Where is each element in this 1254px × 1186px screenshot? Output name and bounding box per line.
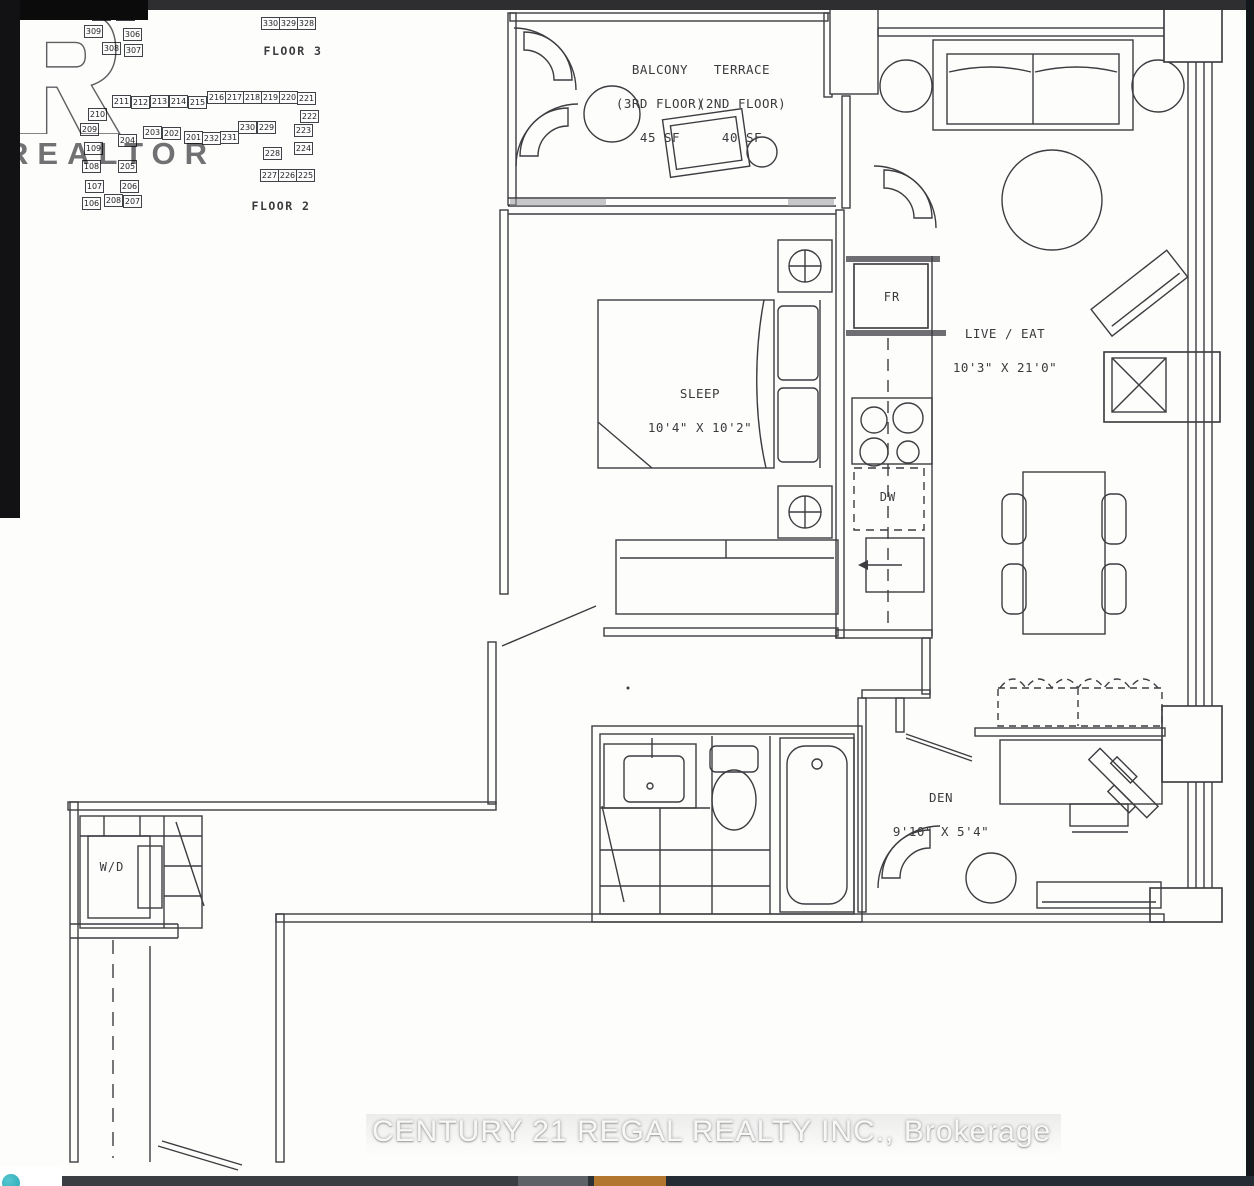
den-label: DEN 9'10" X 5'4" bbox=[893, 772, 989, 857]
keyplan-unit-220: 220 bbox=[279, 91, 298, 104]
keyplan-unit-330: 330 bbox=[261, 17, 280, 30]
keyplan-unit-231: 231 bbox=[220, 131, 239, 144]
keyplan-unit-216: 216 bbox=[207, 91, 226, 104]
balcony-label: BALCONY (3RD FLOOR) 45 SF bbox=[616, 44, 704, 163]
realtor-logo-icon bbox=[6, 14, 126, 134]
right-chrome-strip bbox=[1246, 0, 1254, 1186]
top-left-chrome-block bbox=[0, 0, 148, 20]
brokerage-watermark: CENTURY 21 REGAL REALTY INC., Brokerage bbox=[366, 1114, 1061, 1155]
keyplan-unit-329: 329 bbox=[279, 17, 298, 30]
keyplan-unit-224: 224 bbox=[294, 142, 313, 155]
taskbar-segment bbox=[666, 1176, 1254, 1186]
keyplan-unit-228: 228 bbox=[263, 147, 282, 160]
floor2-label: FLOOR 2 bbox=[252, 199, 311, 213]
sleep-label: SLEEP 10'4" X 10'2" bbox=[648, 368, 752, 453]
keyplan-unit-214: 214 bbox=[169, 95, 188, 108]
realtor-wordmark: REALTOR bbox=[6, 136, 216, 172]
keyplan-unit-207: 207 bbox=[123, 195, 142, 208]
fridge-label: FR bbox=[884, 290, 900, 304]
terrace-label: TERRACE (2ND FLOOR) 40 SF bbox=[698, 44, 786, 163]
app-icon[interactable] bbox=[2, 1174, 20, 1186]
floorplan-page: 310305309306308307330329328 210211212213… bbox=[0, 0, 1254, 1186]
floor3-label: FLOOR 3 bbox=[264, 44, 323, 58]
keyplan-unit-106: 106 bbox=[82, 197, 101, 210]
washer-dryer-label: W/D bbox=[100, 860, 125, 874]
keyplan-unit-215: 215 bbox=[188, 96, 207, 109]
keyplan-unit-307: 307 bbox=[124, 44, 143, 57]
keyplan-unit-219: 219 bbox=[261, 91, 280, 104]
keyplan-unit-328: 328 bbox=[297, 17, 316, 30]
left-chrome-strip bbox=[0, 0, 20, 518]
keyplan-unit-223: 223 bbox=[294, 124, 313, 137]
keyplan-unit-229: 229 bbox=[257, 121, 276, 134]
keyplan-unit-206: 206 bbox=[120, 180, 139, 193]
taskbar-orange-segment bbox=[594, 1176, 666, 1186]
keyplan-unit-225: 225 bbox=[296, 169, 315, 182]
keyplan-unit-226: 226 bbox=[278, 169, 297, 182]
dishwasher-label: DW bbox=[880, 490, 896, 504]
keyplan-unit-222: 222 bbox=[300, 110, 319, 123]
keyplan-unit-227: 227 bbox=[260, 169, 279, 182]
top-chrome-bar bbox=[0, 0, 1254, 10]
keyplan: 310305309306308307330329328 210211212213… bbox=[0, 0, 1254, 1186]
taskbar-segment bbox=[62, 1176, 518, 1186]
taskbar-segment bbox=[518, 1176, 588, 1186]
live-eat-label: LIVE / EAT 10'3" X 21'0" bbox=[953, 308, 1057, 393]
keyplan-unit-217: 217 bbox=[225, 91, 244, 104]
keyplan-unit-107: 107 bbox=[85, 180, 104, 193]
keyplan-unit-212: 212 bbox=[131, 96, 150, 109]
keyplan-unit-230: 230 bbox=[238, 121, 257, 134]
keyplan-unit-208: 208 bbox=[104, 194, 123, 207]
keyplan-unit-221: 221 bbox=[297, 92, 316, 105]
keyplan-unit-213: 213 bbox=[150, 95, 169, 108]
keyplan-unit-218: 218 bbox=[243, 91, 262, 104]
